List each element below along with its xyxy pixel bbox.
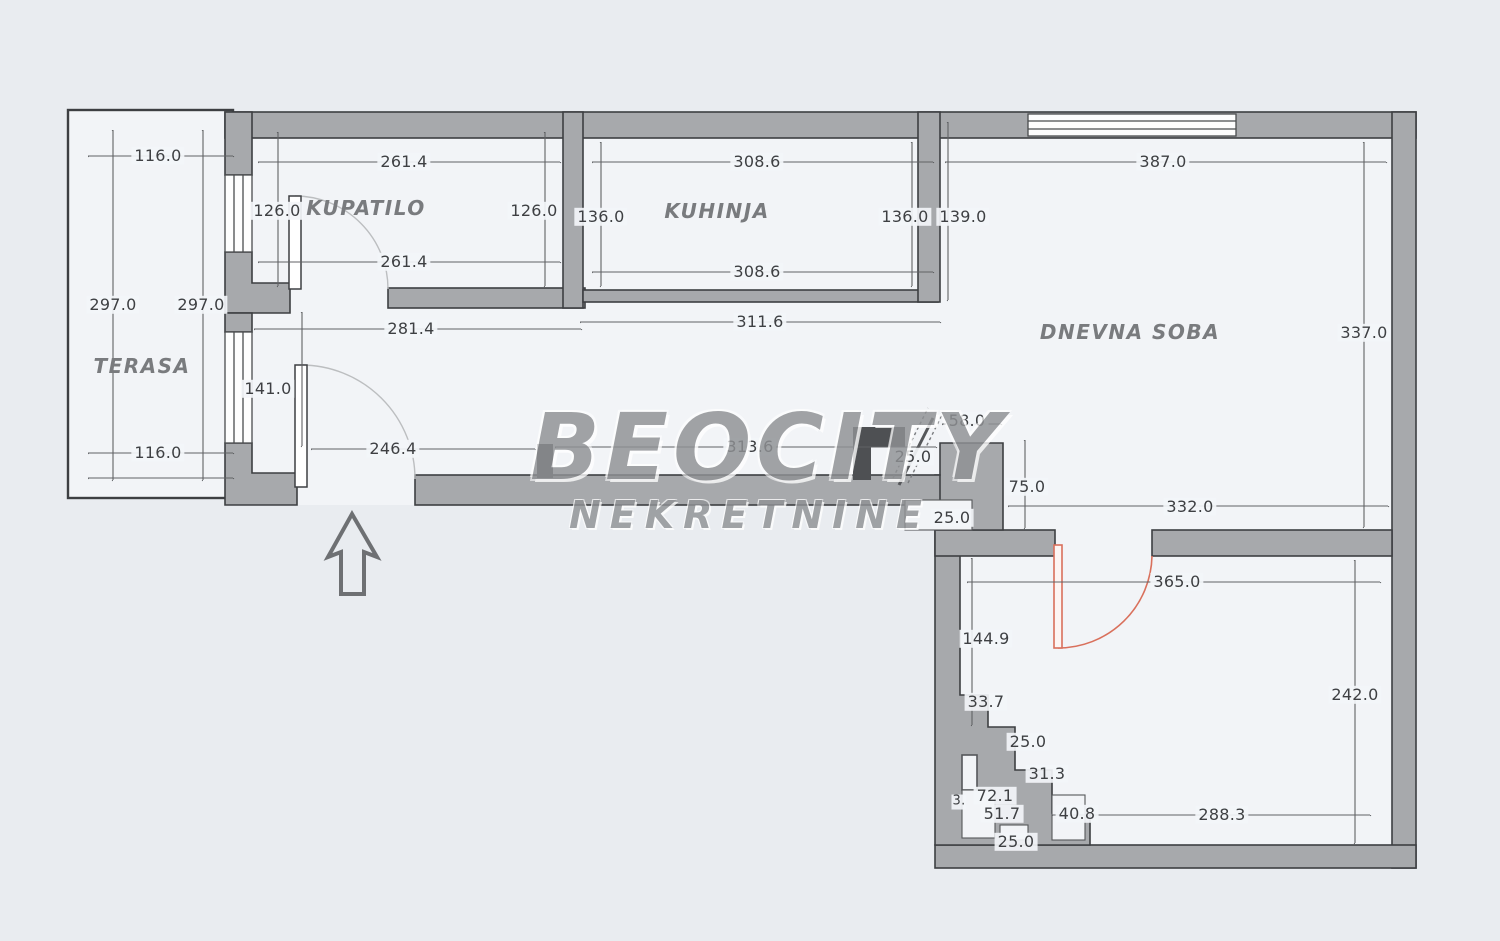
floorplan-canvas: TERASA KUPATILO KUHINJA DNEVNA SOBA 116.… [0,0,1500,941]
dim-kuhinja-outer-h: 311.6 [733,313,786,331]
dim-kupatilo-outer: 281.4 [384,320,437,338]
dim-step-25-upper: 25.0 [1007,733,1050,751]
floorplan-drawing [0,0,1500,941]
dim-opening-width: 58.0 [946,412,989,430]
entrance-arrow-icon [328,514,377,594]
dim-hall-width-left: 246.4 [366,440,419,458]
dim-kuhinja-left: 136.0 [574,208,627,226]
dim-step-3: 3. [951,795,966,810]
dim-bedroom-bottom: 288.3 [1195,806,1248,824]
wall-pier [853,447,871,480]
dim-step-40: 40.8 [1056,805,1099,823]
dim-wall-75: 75.0 [1006,478,1049,496]
room-label-kupatilo: KUPATILO [306,196,426,220]
room-label-kuhinja: KUHINJA [664,199,769,223]
dim-bedroom-left: 144.9 [959,630,1012,648]
dim-terasa-left: 297.0 [86,296,139,314]
dim-kupatilo-bottom: 261.4 [377,253,430,271]
dim-kuhinja-bottom: 308.6 [730,263,783,281]
dim-dnevna-right: 337.0 [1337,324,1390,342]
room-label-dnevna-soba: DNEVNA SOBA [1040,320,1220,344]
dim-dnevna-top: 387.0 [1136,153,1189,171]
dim-wall-25-upper: 25.0 [892,448,935,466]
dim-kupatilo-top: 261.4 [377,153,430,171]
dim-dnevna-bottom: 332.0 [1163,498,1216,516]
dim-kuhinja-right: 136.0 [878,208,931,226]
dim-hall-door-height: 141.0 [241,380,294,398]
dim-terasa-right: 297.0 [174,296,227,314]
wall-pier [537,444,553,478]
window-icon [1028,114,1236,136]
entrance-door-leaf [295,365,307,487]
dim-hall-width-right: 313.6 [723,438,776,456]
dim-kuhinja-outer-v: 139.0 [936,208,989,226]
dim-wall-25-lower: 25.0 [931,509,974,527]
wall-pier [853,427,905,447]
dim-kupatilo-right: 126.0 [507,202,560,220]
dim-step-51: 51.7 [981,805,1024,823]
dim-kupatilo-left: 126.0 [250,202,303,220]
dim-step-31: 31.3 [1026,765,1069,783]
dim-kuhinja-top: 308.6 [730,153,783,171]
dim-terasa-bottom: 116.0 [131,444,184,462]
room-label-terasa: TERASA [93,354,190,378]
dim-bedroom-right: 242.0 [1328,686,1381,704]
dim-terasa-top: 116.0 [131,147,184,165]
dim-step-25-lower: 25.0 [995,833,1038,851]
bedroom-door-leaf [1054,545,1062,648]
dim-bedroom-top: 365.0 [1150,573,1203,591]
dim-step-33: 33.7 [965,693,1008,711]
dim-step-72: 72.1 [974,787,1017,805]
window-icon [225,175,252,252]
